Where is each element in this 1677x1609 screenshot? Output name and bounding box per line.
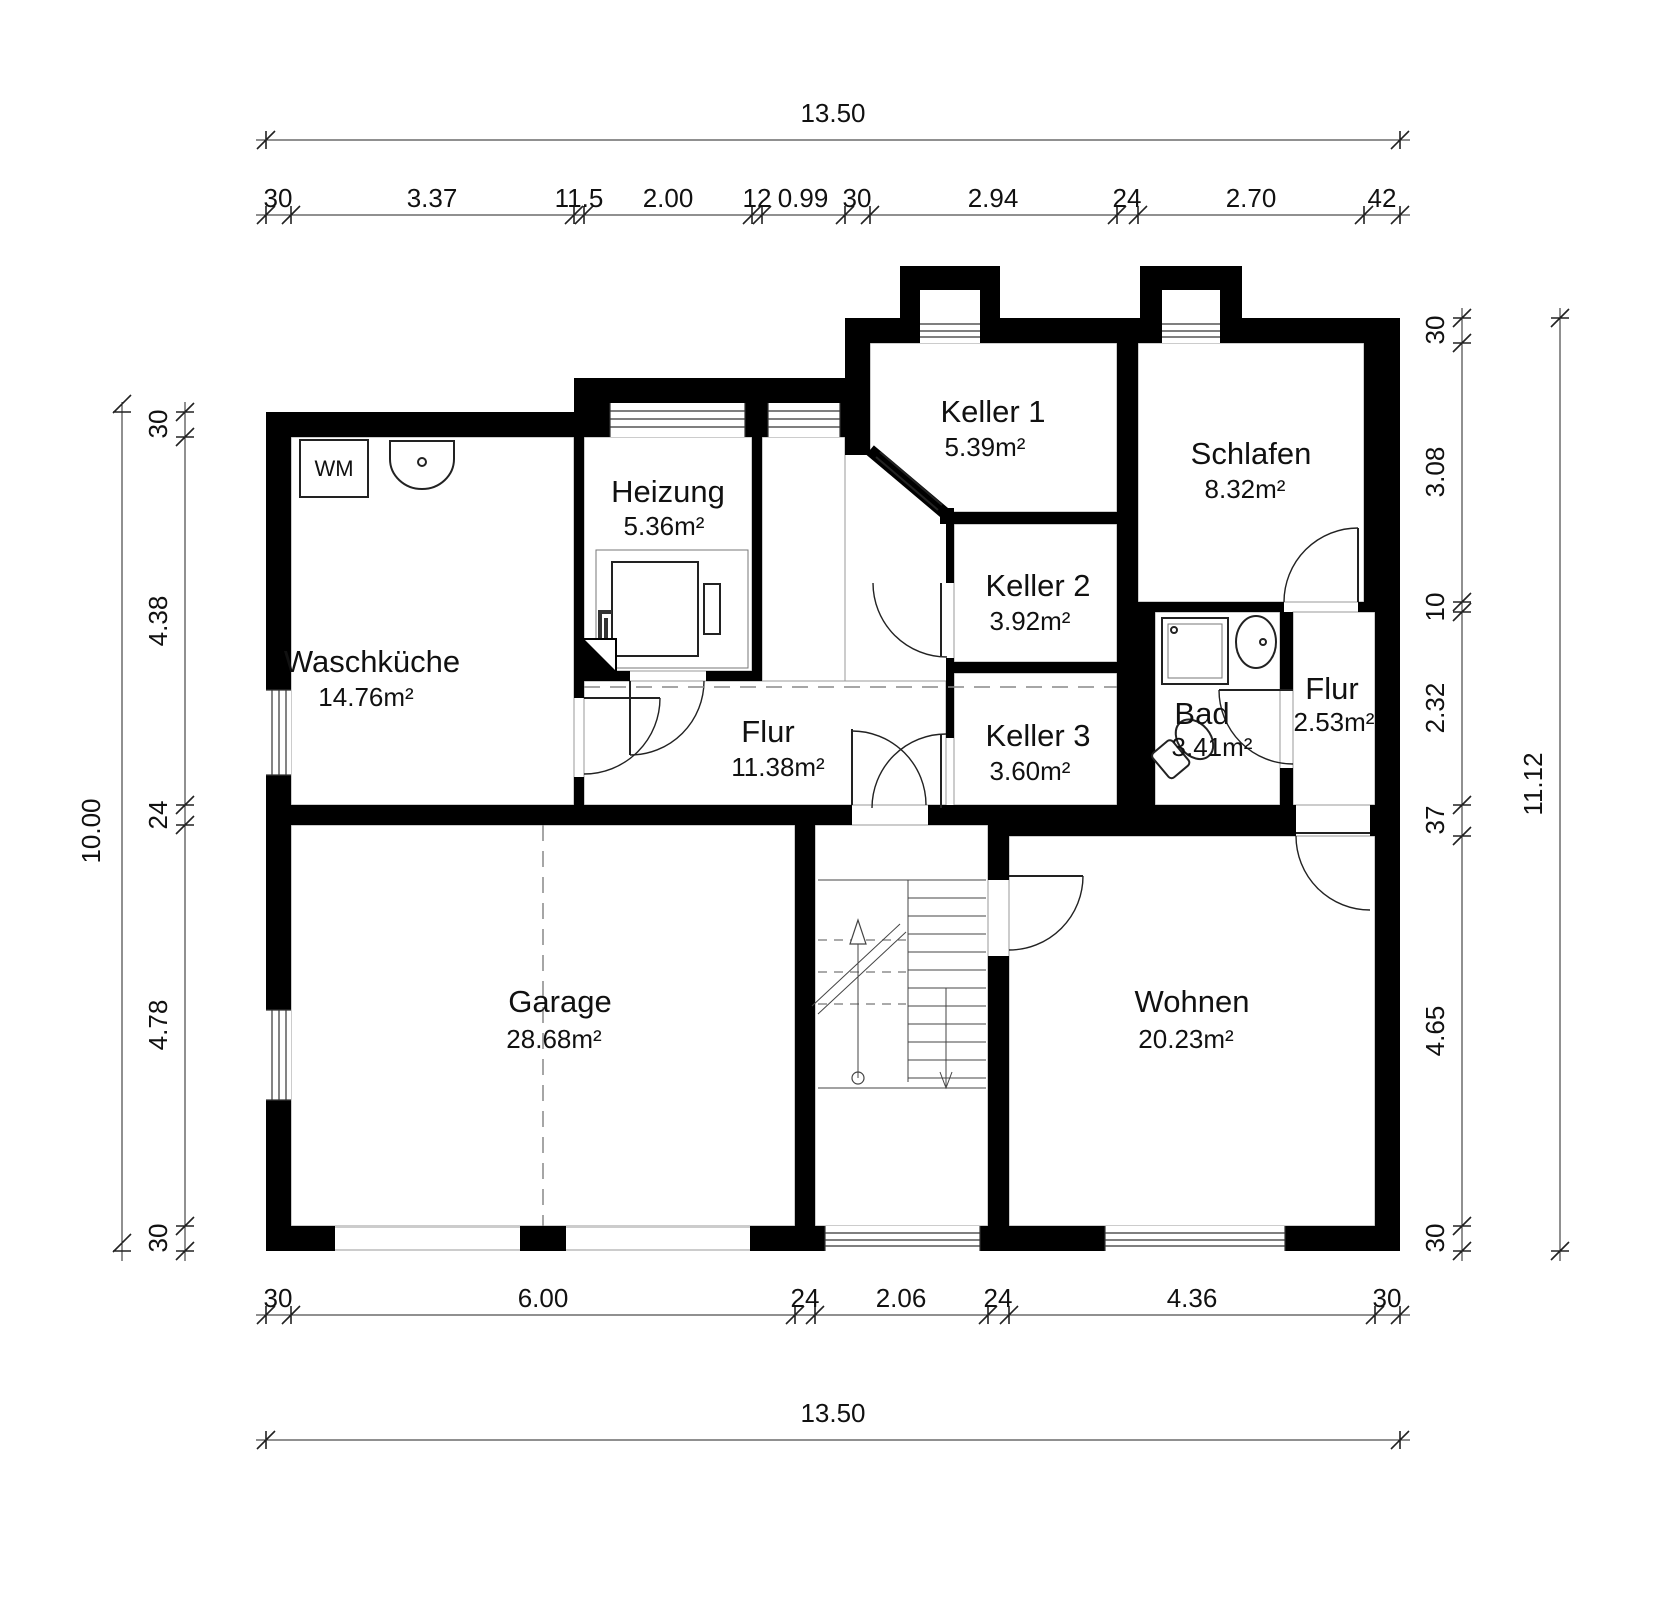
svg-text:30: 30 — [143, 1224, 173, 1253]
svg-text:2.53m²: 2.53m² — [1294, 707, 1375, 737]
floor-plan: WM — [0, 0, 1677, 1609]
svg-text:3.08: 3.08 — [1420, 447, 1450, 498]
svg-text:Waschküche: Waschküche — [284, 644, 460, 679]
bad-sink — [1236, 616, 1276, 668]
svg-text:37: 37 — [1420, 806, 1450, 835]
svg-text:Schlafen: Schlafen — [1191, 436, 1312, 471]
svg-text:24: 24 — [1113, 183, 1142, 213]
svg-text:3.60m²: 3.60m² — [990, 756, 1071, 786]
room-label-keller2: Keller 2 3.92m² — [985, 568, 1090, 636]
room-label-bad: Bad 3.41m² — [1172, 696, 1253, 762]
door-waschkueche — [584, 698, 660, 774]
svg-text:5.39m²: 5.39m² — [945, 432, 1026, 462]
svg-text:5.36m²: 5.36m² — [624, 511, 705, 541]
svg-text:24: 24 — [143, 801, 173, 830]
room-label-garage: Garage 28.68m² — [506, 984, 611, 1054]
dim-left-total: 10.00 — [76, 798, 106, 863]
door-heizung — [630, 681, 704, 755]
door-keller2 — [873, 583, 947, 657]
svg-text:11.5: 11.5 — [555, 183, 604, 213]
svg-text:14.76m²: 14.76m² — [318, 682, 414, 712]
svg-text:30: 30 — [143, 410, 173, 439]
door-schlafen — [1284, 528, 1358, 602]
svg-text:6.00: 6.00 — [518, 1283, 569, 1313]
svg-text:4.38: 4.38 — [143, 596, 173, 647]
room-labels: Waschküche 14.76m² Heizung 5.36m² Keller… — [284, 394, 1375, 1054]
svg-text:24: 24 — [984, 1283, 1013, 1313]
svg-text:3.37: 3.37 — [407, 183, 458, 213]
svg-text:30: 30 — [264, 183, 293, 213]
dim-top-total: 13.50 — [800, 98, 865, 128]
svg-text:4.78: 4.78 — [143, 1000, 173, 1051]
svg-text:Keller 1: Keller 1 — [940, 394, 1045, 429]
room-label-flur: Flur 11.38m² — [731, 714, 825, 782]
room-label-heizung: Heizung 5.36m² — [611, 474, 725, 541]
svg-text:Flur: Flur — [1305, 671, 1358, 706]
svg-text:42: 42 — [1368, 183, 1397, 213]
svg-text:24: 24 — [791, 1283, 820, 1313]
svg-text:3.41m²: 3.41m² — [1172, 732, 1253, 762]
svg-text:28.68m²: 28.68m² — [506, 1024, 602, 1054]
dimensions-top: 13.50 30 3.37 11.5 2.00 12 0.99 30 2.94 … — [256, 98, 1410, 224]
door-wohnen — [1009, 876, 1083, 950]
svg-text:20.23m²: 20.23m² — [1138, 1024, 1234, 1054]
svg-text:30: 30 — [1420, 316, 1450, 345]
floor-plan-drawing: WM — [0, 0, 1677, 1609]
garage-door-opening-1 — [335, 1226, 520, 1251]
svg-text:11.38m²: 11.38m² — [731, 752, 825, 782]
svg-text:2.70: 2.70 — [1226, 183, 1277, 213]
svg-text:12: 12 — [743, 183, 772, 213]
window-keller1-chimney — [920, 318, 980, 343]
svg-text:2.32: 2.32 — [1420, 683, 1450, 734]
stairs-down-arrow — [940, 988, 952, 1088]
laundry-sink — [390, 441, 454, 489]
svg-text:30: 30 — [264, 1283, 293, 1313]
svg-text:Heizung: Heizung — [611, 474, 725, 509]
room-label-keller3: Keller 3 3.60m² — [985, 718, 1090, 786]
dim-bottom-total: 13.50 — [800, 1398, 865, 1428]
dim-right-total: 11.12 — [1518, 752, 1548, 815]
svg-text:Flur: Flur — [741, 714, 794, 749]
dimensions-right: 30 3.08 10 2.32 37 4.65 30 11.12 — [1420, 308, 1569, 1261]
window-waschkueche-left — [266, 690, 291, 775]
door-flur-wohnen — [1296, 833, 1370, 910]
svg-text:2.00: 2.00 — [643, 183, 694, 213]
room-label-flur-klein: Flur 2.53m² — [1294, 671, 1375, 737]
svg-text:10: 10 — [1420, 593, 1450, 622]
wm-label: WM — [314, 456, 353, 481]
window-heizung-top — [610, 403, 745, 437]
dimensions-bottom: 30 6.00 24 2.06 24 4.36 30 13.50 — [256, 1283, 1410, 1449]
shower — [1162, 618, 1228, 684]
garage-door-opening-2 — [566, 1226, 750, 1251]
window-stairs-bottom — [825, 1226, 980, 1251]
svg-text:2.94: 2.94 — [968, 183, 1019, 213]
dimensions-left: 10.00 30 4.38 24 4.78 30 — [76, 395, 194, 1261]
room-label-keller1: Keller 1 5.39m² — [940, 394, 1045, 462]
svg-text:3.92m²: 3.92m² — [990, 606, 1071, 636]
svg-text:Keller 3: Keller 3 — [985, 718, 1090, 753]
svg-text:30: 30 — [1420, 1224, 1450, 1253]
svg-text:0.99: 0.99 — [778, 183, 829, 213]
window-wohnen-bottom — [1105, 1226, 1285, 1251]
room-label-wohnen: Wohnen 20.23m² — [1135, 984, 1250, 1054]
svg-text:2.06: 2.06 — [876, 1283, 927, 1313]
svg-text:30: 30 — [1373, 1283, 1402, 1313]
svg-text:4.65: 4.65 — [1420, 1006, 1450, 1057]
svg-text:30: 30 — [843, 183, 872, 213]
door-keller3 — [872, 734, 946, 808]
room-label-schlafen: Schlafen 8.32m² — [1191, 436, 1312, 504]
svg-text:Keller 2: Keller 2 — [985, 568, 1090, 603]
svg-text:Wohnen: Wohnen — [1135, 984, 1250, 1019]
window-nook-top — [768, 403, 840, 437]
flue-symbol — [584, 639, 616, 671]
washing-machine: WM — [300, 440, 368, 497]
svg-text:4.36: 4.36 — [1167, 1283, 1218, 1313]
window-schlafen-chimney — [1162, 318, 1220, 343]
svg-text:Garage: Garage — [508, 984, 611, 1019]
window-garage-left — [266, 1010, 291, 1100]
room-label-waschkueche: Waschküche 14.76m² — [284, 644, 460, 712]
stairs-up-arrow — [850, 920, 866, 1084]
staircase — [812, 880, 986, 1088]
svg-text:8.32m²: 8.32m² — [1205, 474, 1286, 504]
svg-text:Bad: Bad — [1174, 696, 1229, 731]
